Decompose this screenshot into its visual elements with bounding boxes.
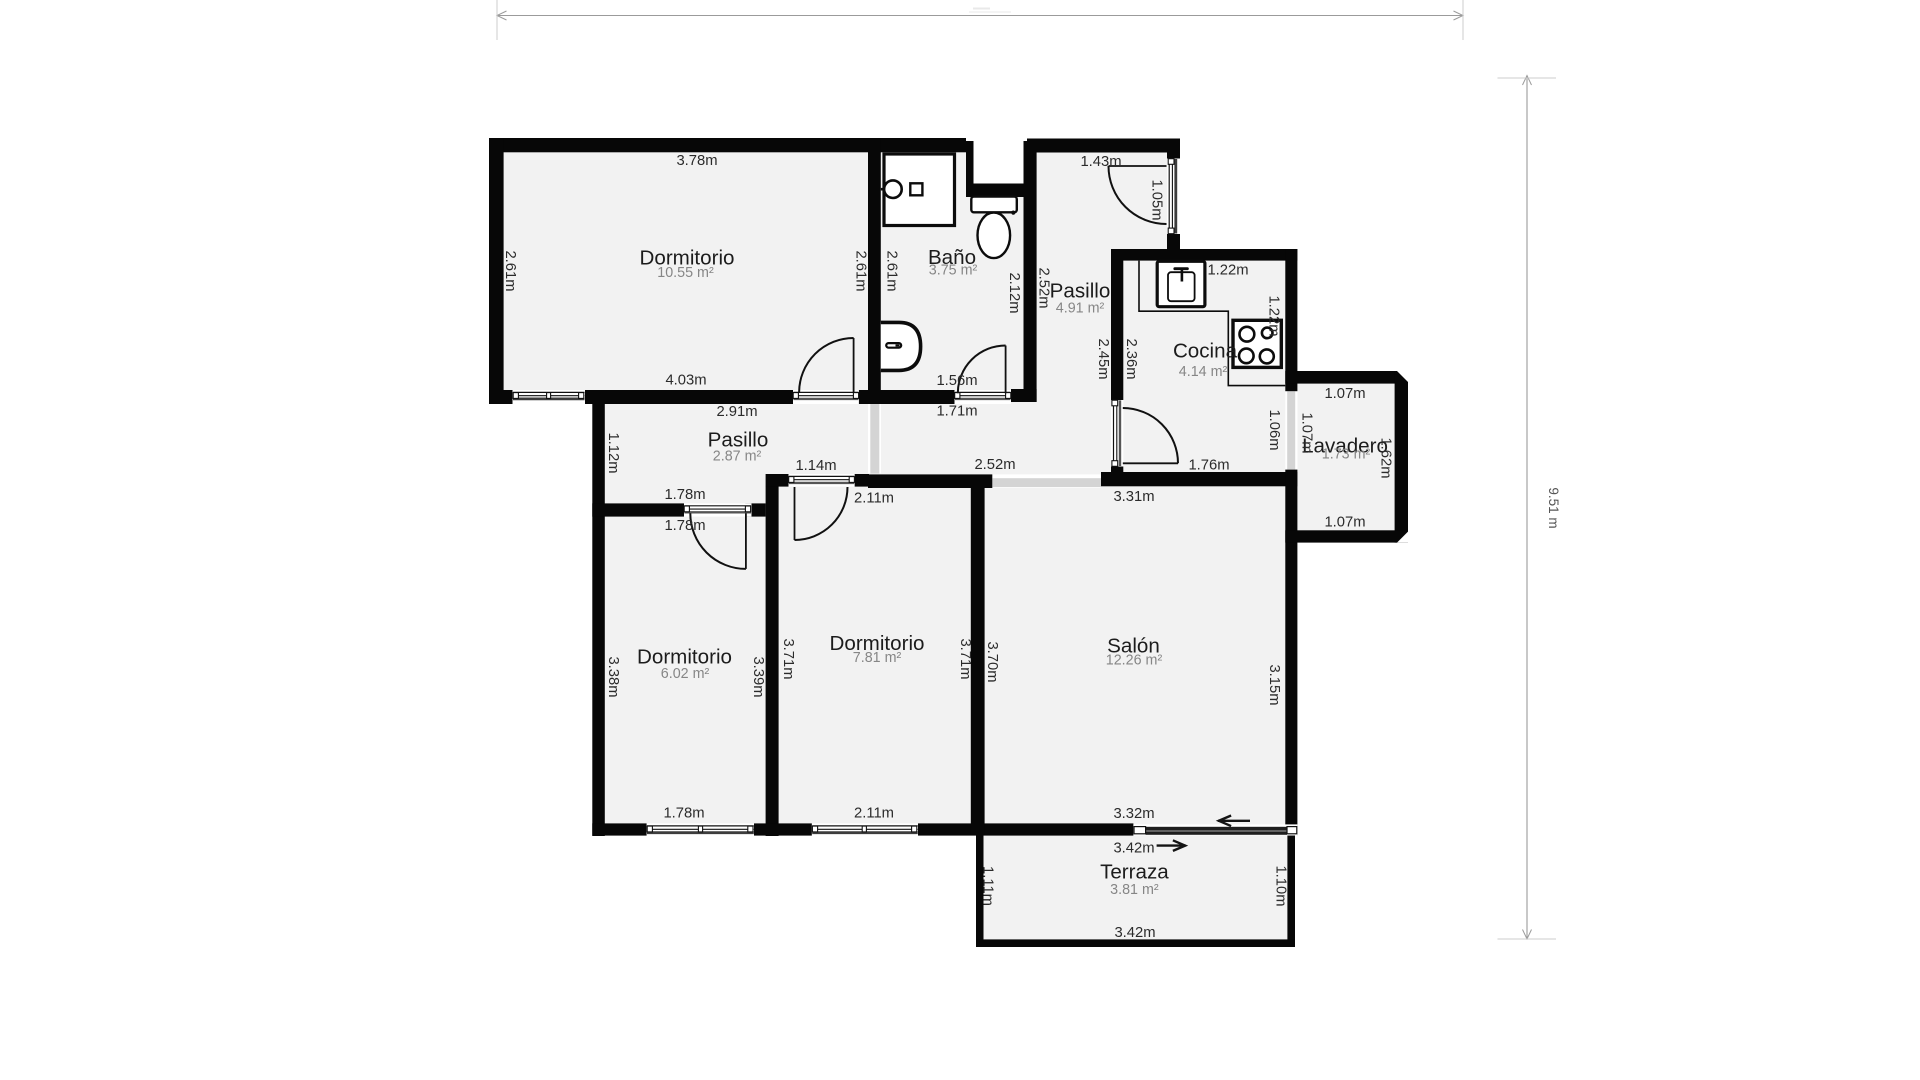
- svg-text:4.91 m²: 4.91 m²: [1056, 301, 1105, 317]
- svg-text:2.11m: 2.11m: [854, 806, 894, 822]
- svg-text:12.26 m²: 12.26 m²: [1106, 653, 1163, 669]
- svg-text:1.07m: 1.07m: [1324, 386, 1365, 402]
- svg-text:1.62m: 1.62m: [1378, 437, 1394, 478]
- svg-text:2.36m: 2.36m: [1123, 338, 1139, 379]
- svg-text:3.32m: 3.32m: [1113, 806, 1154, 822]
- svg-text:1.07m: 1.07m: [1299, 412, 1315, 453]
- svg-text:2.61m: 2.61m: [884, 250, 900, 291]
- svg-text:3.71m: 3.71m: [780, 638, 796, 679]
- svg-text:1.11m: 1.11m: [980, 866, 996, 906]
- svg-text:Cocina: Cocina: [1173, 340, 1238, 363]
- svg-text:2.61m: 2.61m: [502, 250, 518, 291]
- svg-text:1.12m: 1.12m: [605, 432, 621, 473]
- svg-text:2.11m: 2.11m: [854, 491, 894, 507]
- svg-text:4.14 m²: 4.14 m²: [1179, 364, 1228, 380]
- svg-text:6.02 m²: 6.02 m²: [661, 666, 710, 682]
- svg-text:1.56m: 1.56m: [936, 373, 977, 389]
- svg-text:1.78m: 1.78m: [663, 806, 704, 822]
- svg-text:2.87 m²: 2.87 m²: [713, 449, 762, 465]
- svg-text:2.91m: 2.91m: [716, 404, 757, 420]
- svg-text:3.15m: 3.15m: [1266, 664, 1282, 705]
- svg-text:1.10m: 1.10m: [1273, 865, 1289, 906]
- svg-text:1.78m: 1.78m: [664, 518, 705, 534]
- svg-text:3.31m: 3.31m: [1113, 489, 1154, 505]
- svg-text:1.05m: 1.05m: [1149, 179, 1165, 220]
- svg-text:3.81 m²: 3.81 m²: [1110, 882, 1159, 898]
- svg-text:2.52m: 2.52m: [974, 457, 1015, 473]
- svg-text:7.81 m²: 7.81 m²: [853, 650, 902, 666]
- svg-text:1.71m: 1.71m: [936, 404, 977, 420]
- svg-text:4.03m: 4.03m: [665, 373, 706, 389]
- svg-text:3.42m: 3.42m: [1114, 925, 1155, 941]
- svg-text:3.39m: 3.39m: [750, 656, 766, 697]
- svg-text:1.14m: 1.14m: [795, 458, 836, 474]
- svg-text:1.22m: 1.22m: [1266, 295, 1282, 336]
- svg-text:3.42m: 3.42m: [1113, 841, 1154, 857]
- svg-text:2.12m: 2.12m: [1006, 272, 1022, 313]
- svg-text:9.51 m: 9.51 m: [1546, 487, 1561, 528]
- svg-text:3.71m: 3.71m: [957, 638, 973, 679]
- svg-text:1.76m: 1.76m: [1188, 458, 1229, 474]
- svg-text:3.78m: 3.78m: [676, 153, 717, 169]
- svg-text:1.78m: 1.78m: [664, 487, 705, 503]
- svg-text:Terraza: Terraza: [1100, 861, 1169, 884]
- svg-text:2.45m: 2.45m: [1095, 338, 1111, 379]
- svg-text:2.52m: 2.52m: [1036, 267, 1052, 308]
- svg-text:Pasillo: Pasillo: [1050, 280, 1111, 303]
- svg-text:1.43m: 1.43m: [1080, 154, 1121, 170]
- svg-text:10.55 m²: 10.55 m²: [657, 265, 714, 281]
- svg-text:1.73 m²: 1.73 m²: [1322, 447, 1371, 463]
- svg-text:1.07m: 1.07m: [1324, 515, 1365, 531]
- svg-text:1.22m: 1.22m: [1207, 263, 1248, 279]
- svg-text:3.75 m²: 3.75 m²: [929, 263, 978, 279]
- svg-text:2.61m: 2.61m: [853, 250, 869, 291]
- svg-text:3.38m: 3.38m: [605, 656, 621, 697]
- svg-text:3.70m: 3.70m: [984, 641, 1000, 682]
- svg-text:1.06m: 1.06m: [1266, 409, 1282, 450]
